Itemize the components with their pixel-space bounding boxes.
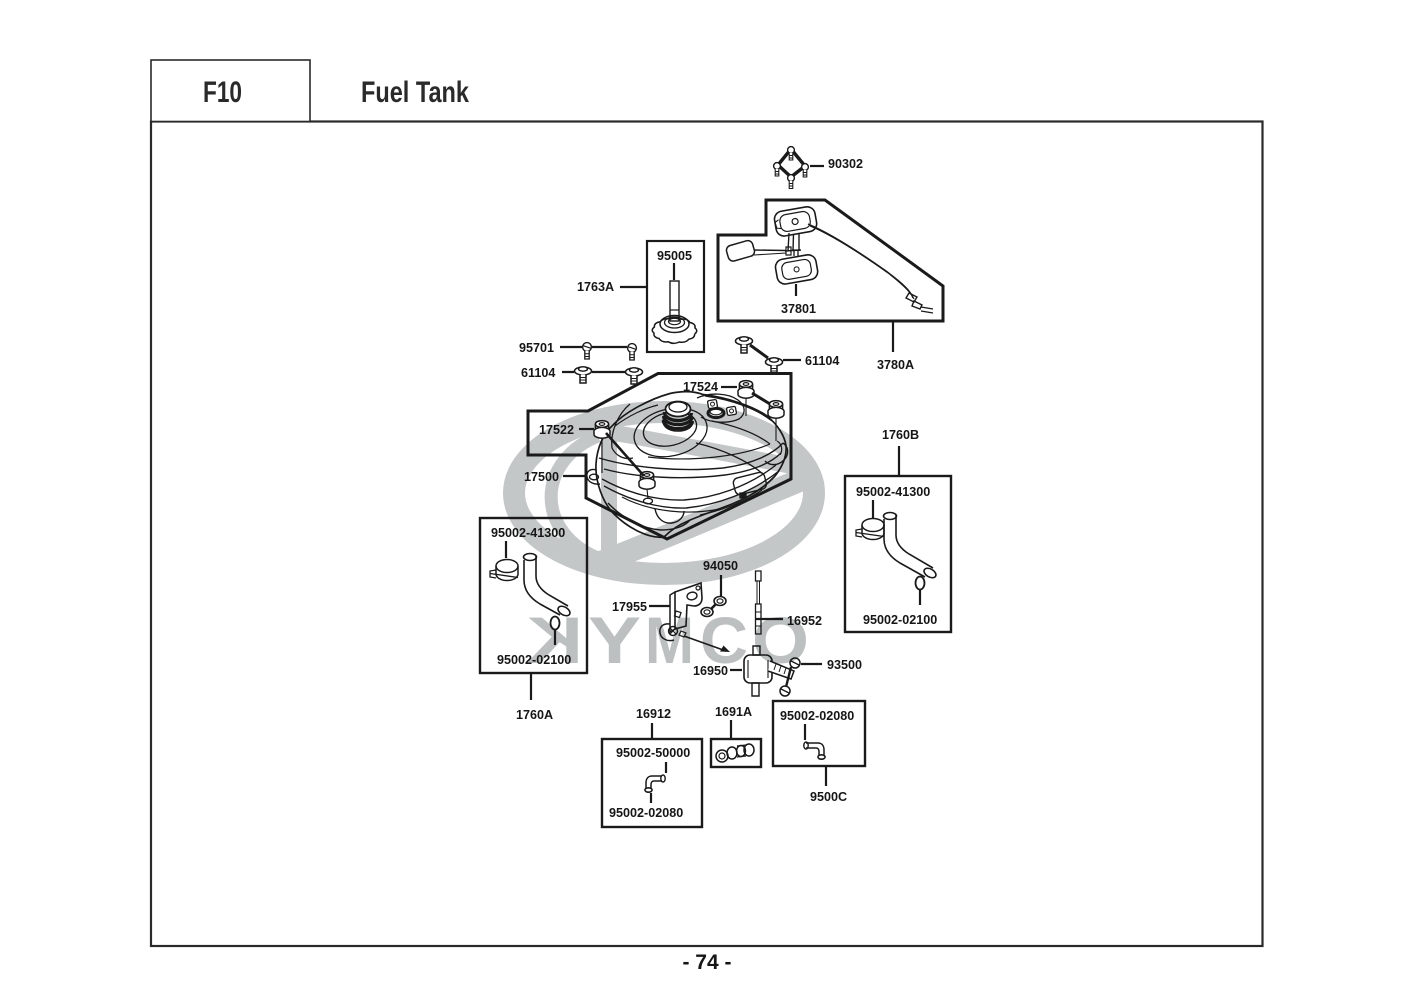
svg-text:95005: 95005 xyxy=(657,249,692,263)
svg-text:1760A: 1760A xyxy=(516,708,553,722)
svg-text:93500: 93500 xyxy=(827,658,862,672)
svg-text:F10: F10 xyxy=(203,76,242,109)
svg-text:1691A: 1691A xyxy=(715,705,752,719)
svg-text:17522: 17522 xyxy=(539,423,574,437)
svg-text:1760B: 1760B xyxy=(882,428,919,442)
svg-text:16950: 16950 xyxy=(693,664,728,678)
svg-text:95002-02100: 95002-02100 xyxy=(863,613,937,627)
svg-text:17955: 17955 xyxy=(612,600,647,614)
svg-text:17500: 17500 xyxy=(524,470,559,484)
svg-text:94050: 94050 xyxy=(703,559,738,573)
svg-text:95002-02100: 95002-02100 xyxy=(497,653,571,667)
svg-text:Fuel Tank: Fuel Tank xyxy=(361,76,469,109)
svg-text:95002-02080: 95002-02080 xyxy=(609,806,683,820)
svg-text:16912: 16912 xyxy=(636,707,671,721)
svg-text:61104: 61104 xyxy=(521,366,555,380)
svg-text:Y: Y xyxy=(588,603,641,677)
svg-text:95002-41300: 95002-41300 xyxy=(491,526,565,540)
svg-text:1763A: 1763A xyxy=(577,280,614,294)
svg-text:95002-02080: 95002-02080 xyxy=(780,709,854,723)
svg-text:3780A: 3780A xyxy=(877,358,914,372)
svg-text:- 74 -: - 74 - xyxy=(682,951,731,974)
svg-text:95002-50000: 95002-50000 xyxy=(616,746,690,760)
svg-text:16952: 16952 xyxy=(787,614,822,628)
svg-text:95002-41300: 95002-41300 xyxy=(856,485,930,499)
svg-text:37801: 37801 xyxy=(781,302,816,316)
svg-text:90302: 90302 xyxy=(828,157,863,171)
svg-text:9500C: 9500C xyxy=(810,790,847,804)
svg-text:95701: 95701 xyxy=(519,341,554,355)
svg-text:61104: 61104 xyxy=(805,354,839,368)
